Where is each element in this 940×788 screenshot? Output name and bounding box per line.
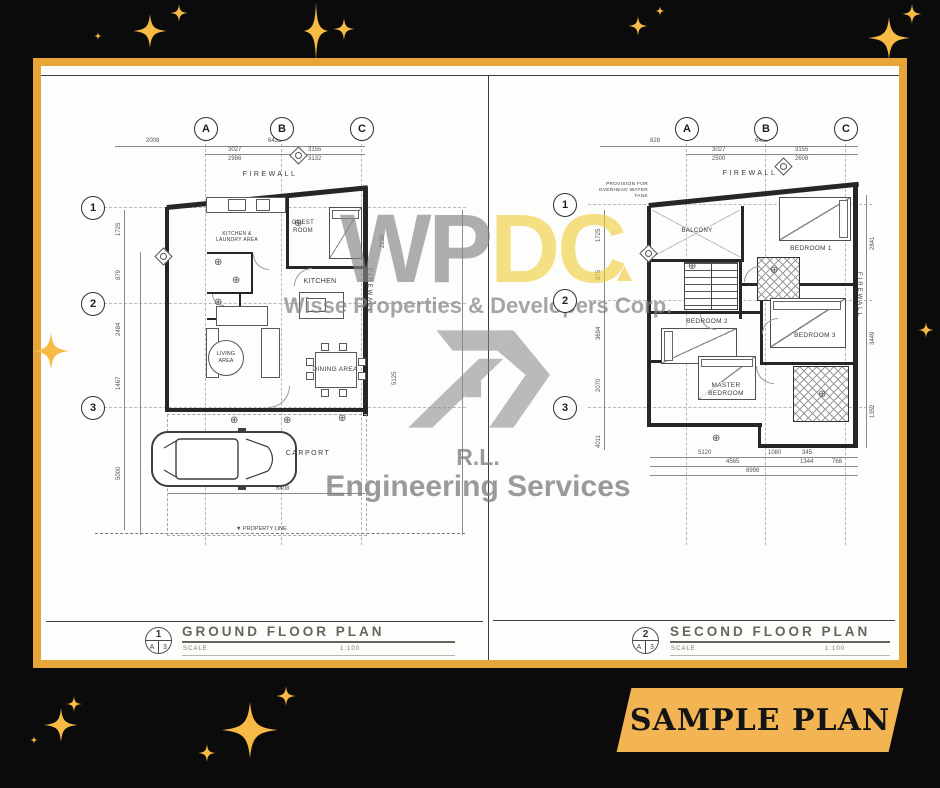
bed: [779, 197, 851, 241]
grid-label: A: [202, 123, 210, 135]
sparkle-icon: [133, 14, 167, 48]
dim-line: [686, 154, 858, 155]
fixture-icon: ⊕: [770, 266, 778, 276]
bed: [770, 298, 846, 348]
firewall-label: FIREWALL: [856, 272, 862, 318]
grid-label: 2: [90, 298, 96, 310]
sparkle-icon: [276, 686, 296, 706]
dimension-label: 2841: [870, 237, 876, 250]
grid-bubble-1: 1: [553, 193, 577, 217]
dimension-label: 2608: [795, 156, 808, 162]
grid-bubble-C: C: [834, 117, 858, 141]
sparkle-icon: [902, 4, 922, 24]
dimension-label: 2070: [596, 379, 602, 392]
dimension-label: 3694: [596, 327, 602, 340]
sparkle-icon: [66, 696, 82, 712]
second-floor-plan: A B C 1 2 3 828 6432 3027 3155 2500 2608…: [0, 0, 940, 788]
dim-line: [650, 475, 858, 476]
dimension-label: 4011: [596, 435, 602, 448]
room-label-balcony: BALCONY: [672, 228, 722, 236]
stairs-rail: [711, 262, 712, 310]
sparkle-icon: [304, 2, 328, 60]
grid-label: 3: [562, 402, 568, 414]
dimension-label: 345: [802, 450, 812, 456]
dimension-label: 2500: [712, 156, 725, 162]
grid-label: 3: [90, 402, 96, 414]
grid-bubble-A: A: [194, 117, 218, 141]
room-label-master-bedroom: MASTER BEDROOM: [700, 382, 752, 398]
grid-bubble-2: 2: [81, 292, 105, 316]
fixture-icon: ⊕: [818, 390, 826, 400]
grid-bubble-C: C: [350, 117, 374, 141]
sparkle-icon: [333, 18, 355, 40]
room-label-bedroom-3: BEDROOM 3: [792, 332, 838, 340]
grid-line: [765, 139, 766, 545]
fixture-icon: ⊕: [688, 262, 696, 272]
wall: [760, 362, 858, 365]
sparkle-icon: [655, 6, 665, 16]
sparkle-icon: [170, 4, 188, 22]
scale-value: 1:100: [825, 646, 845, 652]
scale-label: SCALE: [671, 646, 696, 652]
dimension-label: 3449: [870, 332, 876, 345]
dimension-label: 8998: [746, 468, 759, 474]
grid-label: 2: [562, 295, 568, 307]
bathroom-floor: [757, 257, 800, 301]
grid-bubble-3: 3: [553, 396, 577, 420]
dimension-label: 828: [650, 138, 660, 144]
dim-line: [866, 195, 867, 448]
title-rule: [670, 655, 890, 656]
sheet-title: SECOND FLOOR PLAN: [670, 624, 870, 639]
dimension-label: 5120: [698, 450, 711, 456]
door-swing: [744, 266, 760, 282]
grid-bubble-1: 1: [81, 196, 105, 220]
door-swing: [756, 366, 774, 384]
room-label-bedroom-2: BEDROOM 2: [682, 318, 732, 326]
dimension-label: 1725: [596, 229, 602, 242]
firewall-label: FIREWALL: [705, 170, 795, 179]
dim-line: [600, 146, 858, 147]
sample-plan-banner: SAMPLE PLAN: [617, 688, 904, 752]
sheet-ref: 3: [646, 641, 658, 653]
sample-plan-label: SAMPLE PLAN: [630, 703, 890, 738]
title-rule: [670, 641, 890, 643]
grid-label: B: [278, 123, 286, 135]
grid-label: B: [762, 123, 770, 135]
dim-line: [650, 466, 858, 467]
grid-label: C: [842, 123, 850, 135]
sparkle-icon: [918, 322, 934, 338]
wall: [739, 259, 742, 319]
wall: [647, 206, 651, 426]
dimension-label: 1080: [768, 450, 781, 456]
detail-ref-bubble: 2 A3: [632, 627, 659, 654]
wall: [647, 423, 762, 427]
grid-label: C: [358, 123, 366, 135]
room-label-bedroom-1: BEDROOM 1: [788, 245, 834, 253]
dimension-label: 875: [596, 270, 602, 280]
sparkle-icon: [94, 32, 102, 40]
dimension-label: 1352: [870, 405, 876, 418]
sparkle-icon: [222, 702, 278, 758]
dimension-label: 768: [832, 459, 842, 465]
sparkle-icon: [628, 16, 648, 36]
dim-line: [604, 210, 605, 450]
dim-line: [650, 457, 858, 458]
grid-label: 1: [562, 199, 568, 211]
grid-bubble-B: B: [270, 117, 294, 141]
sparkle-icon: [30, 736, 38, 744]
fixture-icon: ⊕: [712, 434, 720, 444]
sparkle-icon: [32, 332, 70, 370]
sparkle-icon: [44, 708, 78, 742]
sparkle-icon: [198, 744, 216, 762]
sheet-ref: A: [633, 641, 646, 653]
grid-label: 1: [90, 202, 96, 214]
poster: A B C 1 2 3 2008 6432 3027 3155 2986 313…: [0, 0, 940, 788]
grid-label: A: [683, 123, 691, 135]
grid-bubble-B: B: [754, 117, 778, 141]
dimension-label: 1344: [800, 459, 813, 465]
dimension-label: 3027: [712, 147, 725, 153]
wall: [741, 206, 744, 262]
note-water-tank: PROVISION FOR OVERHEAD WATER TANK: [592, 182, 648, 200]
wall: [758, 444, 858, 448]
grid-bubble-A: A: [675, 117, 699, 141]
detail-number: 2: [633, 628, 658, 640]
dimension-label: 3155: [795, 147, 808, 153]
grid-bubble-3: 3: [81, 396, 105, 420]
dimension-label: 4565: [726, 459, 739, 465]
grid-bubble-2: 2: [553, 289, 577, 313]
